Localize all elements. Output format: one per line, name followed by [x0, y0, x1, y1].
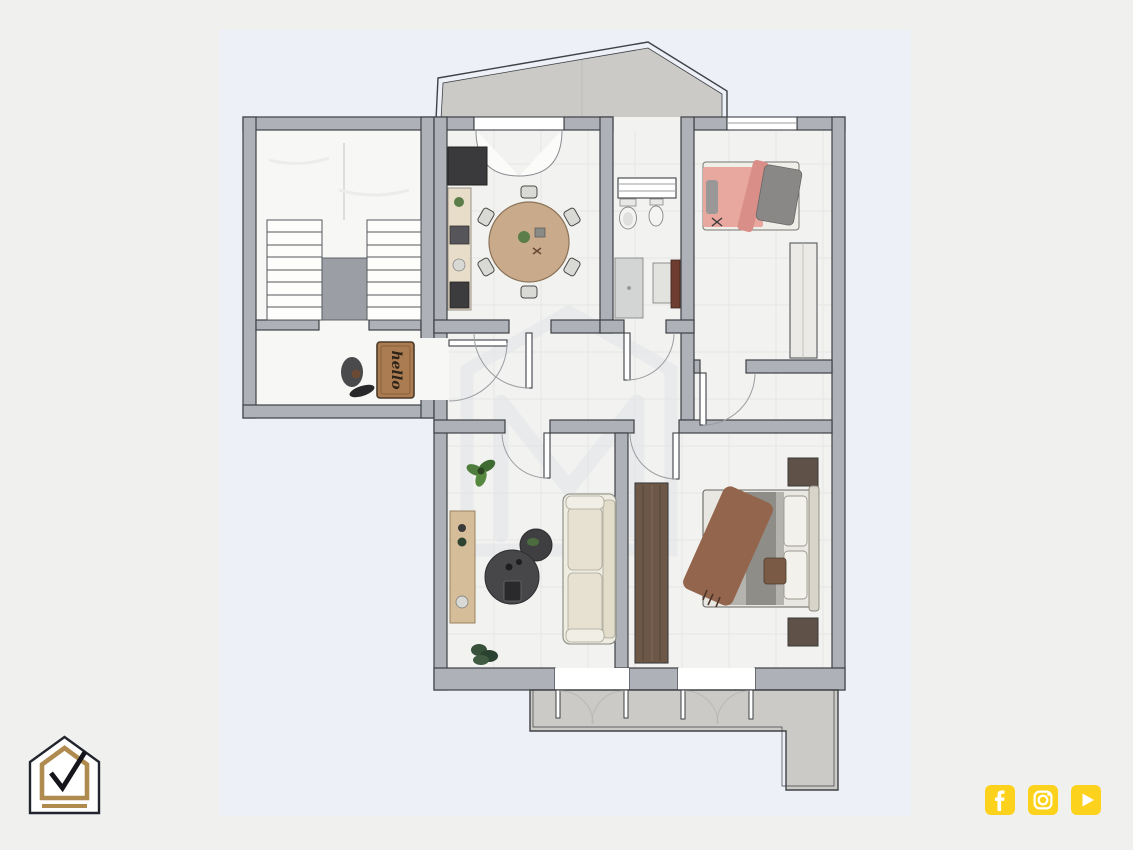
youtube-icon[interactable]	[1071, 785, 1101, 815]
living-door-leaf	[544, 433, 550, 478]
social-icons	[985, 785, 1101, 815]
sofa	[563, 494, 616, 644]
bedroom-master-door-leaf	[673, 433, 679, 479]
house-checkmark-logo-icon	[28, 735, 101, 815]
wardrobe-master	[635, 483, 668, 663]
kitchen-counter	[448, 188, 471, 310]
nightstand-top	[788, 458, 818, 486]
dining-table	[489, 202, 569, 282]
kitchen-door-leaf	[526, 333, 532, 388]
sink	[653, 263, 671, 303]
instagram-icon[interactable]	[1028, 785, 1058, 815]
oven	[450, 282, 469, 308]
stair-flight-right	[367, 220, 421, 320]
bedroom-balcony-door	[678, 668, 755, 690]
entry-mat-text: hello	[388, 350, 404, 389]
sideboard	[450, 511, 475, 623]
single-bed	[703, 159, 803, 233]
stair-mid-landing	[322, 258, 367, 320]
kitchen-sink	[453, 259, 465, 271]
stove	[450, 226, 469, 244]
floor-plan-svg: M	[219, 30, 911, 816]
balcony-bottom	[530, 690, 838, 790]
balcony-door-leaf	[749, 690, 753, 719]
bathroom-door-leaf	[624, 333, 630, 380]
fridge	[448, 147, 487, 185]
balcony-door-leaf	[624, 690, 628, 718]
bidet	[649, 199, 663, 226]
bedroom-small-door-leaf	[700, 373, 706, 425]
floor-plan-image: M	[219, 30, 911, 816]
entry-door-leaf	[449, 340, 507, 346]
hello-doormat: hello	[377, 342, 414, 398]
nightstand-bottom	[788, 618, 818, 646]
vanity	[671, 260, 680, 308]
toilet	[620, 199, 637, 229]
entry-door-opening	[419, 338, 449, 400]
counter-plant	[454, 197, 464, 207]
bedroom-small-window	[727, 117, 797, 130]
living-balcony-door	[555, 668, 629, 690]
wardrobe-small-bedroom	[790, 243, 817, 358]
bathroom-window	[618, 178, 676, 198]
facebook-icon[interactable]	[985, 785, 1015, 815]
balcony-door-leaf	[681, 690, 685, 719]
balcony-door-leaf	[556, 690, 560, 718]
page-background: M	[0, 0, 1133, 850]
stair-flight-left	[267, 220, 322, 320]
agency-logo	[28, 735, 101, 815]
